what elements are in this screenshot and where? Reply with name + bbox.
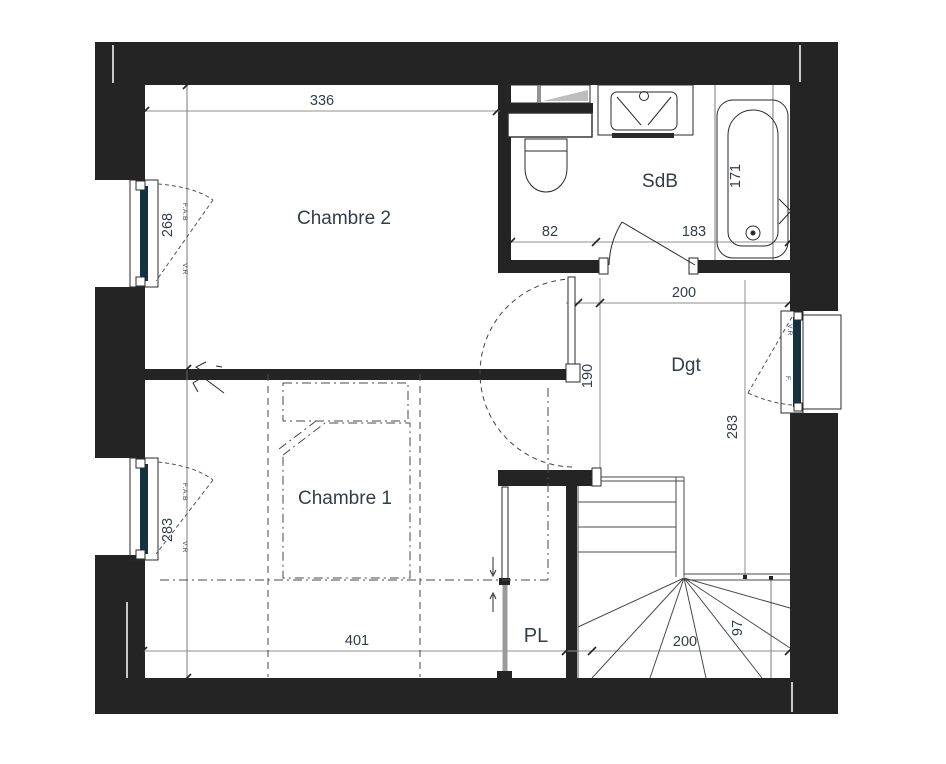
sink xyxy=(598,85,693,138)
window1-shutter-label: V.R xyxy=(181,263,188,275)
slide-direction-arrows xyxy=(490,557,496,612)
room-label-sdb: SdB xyxy=(642,171,678,192)
room-label-chambre2: Chambre 2 xyxy=(297,208,391,229)
window-chambre1 xyxy=(130,458,213,560)
window3-shutter-label: V.R xyxy=(786,324,793,336)
window1-type-label: F.A.B xyxy=(181,203,188,221)
toilet xyxy=(508,113,592,192)
shelf-niche xyxy=(508,85,590,103)
dim-171: 171 xyxy=(728,164,744,188)
dim-97: 97 xyxy=(730,620,746,636)
dim-283-left: 283 xyxy=(160,518,176,542)
dim-82: 82 xyxy=(542,224,558,240)
dim-200-stairs: 200 xyxy=(673,634,697,650)
bed xyxy=(268,374,420,677)
window2-shutter-label: V.R xyxy=(181,541,188,553)
dim-190: 190 xyxy=(580,364,596,388)
room-label-dgt: Dgt xyxy=(671,355,701,376)
ceiling-lines xyxy=(160,388,548,580)
floorplan-drawing: 336 82 183 171 268 283 200 190 283 401 2… xyxy=(0,0,946,764)
dim-183: 183 xyxy=(682,224,706,240)
floorplan: 336 82 183 171 268 283 200 190 283 401 2… xyxy=(0,0,946,764)
room-label-pl: PL xyxy=(524,625,548,647)
window2-type-label: F.A.B xyxy=(181,483,188,501)
room-label-chambre1: Chambre 1 xyxy=(298,488,392,509)
window3-type-label: F. xyxy=(784,376,791,382)
dim-283-dgt: 283 xyxy=(725,415,741,439)
dim-268: 268 xyxy=(160,213,176,237)
window-dgt xyxy=(748,311,841,413)
sliding-door-pl xyxy=(490,487,512,679)
dim-336: 336 xyxy=(310,93,334,109)
dim-200-dgt: 200 xyxy=(672,285,696,301)
dim-401: 401 xyxy=(345,633,369,649)
